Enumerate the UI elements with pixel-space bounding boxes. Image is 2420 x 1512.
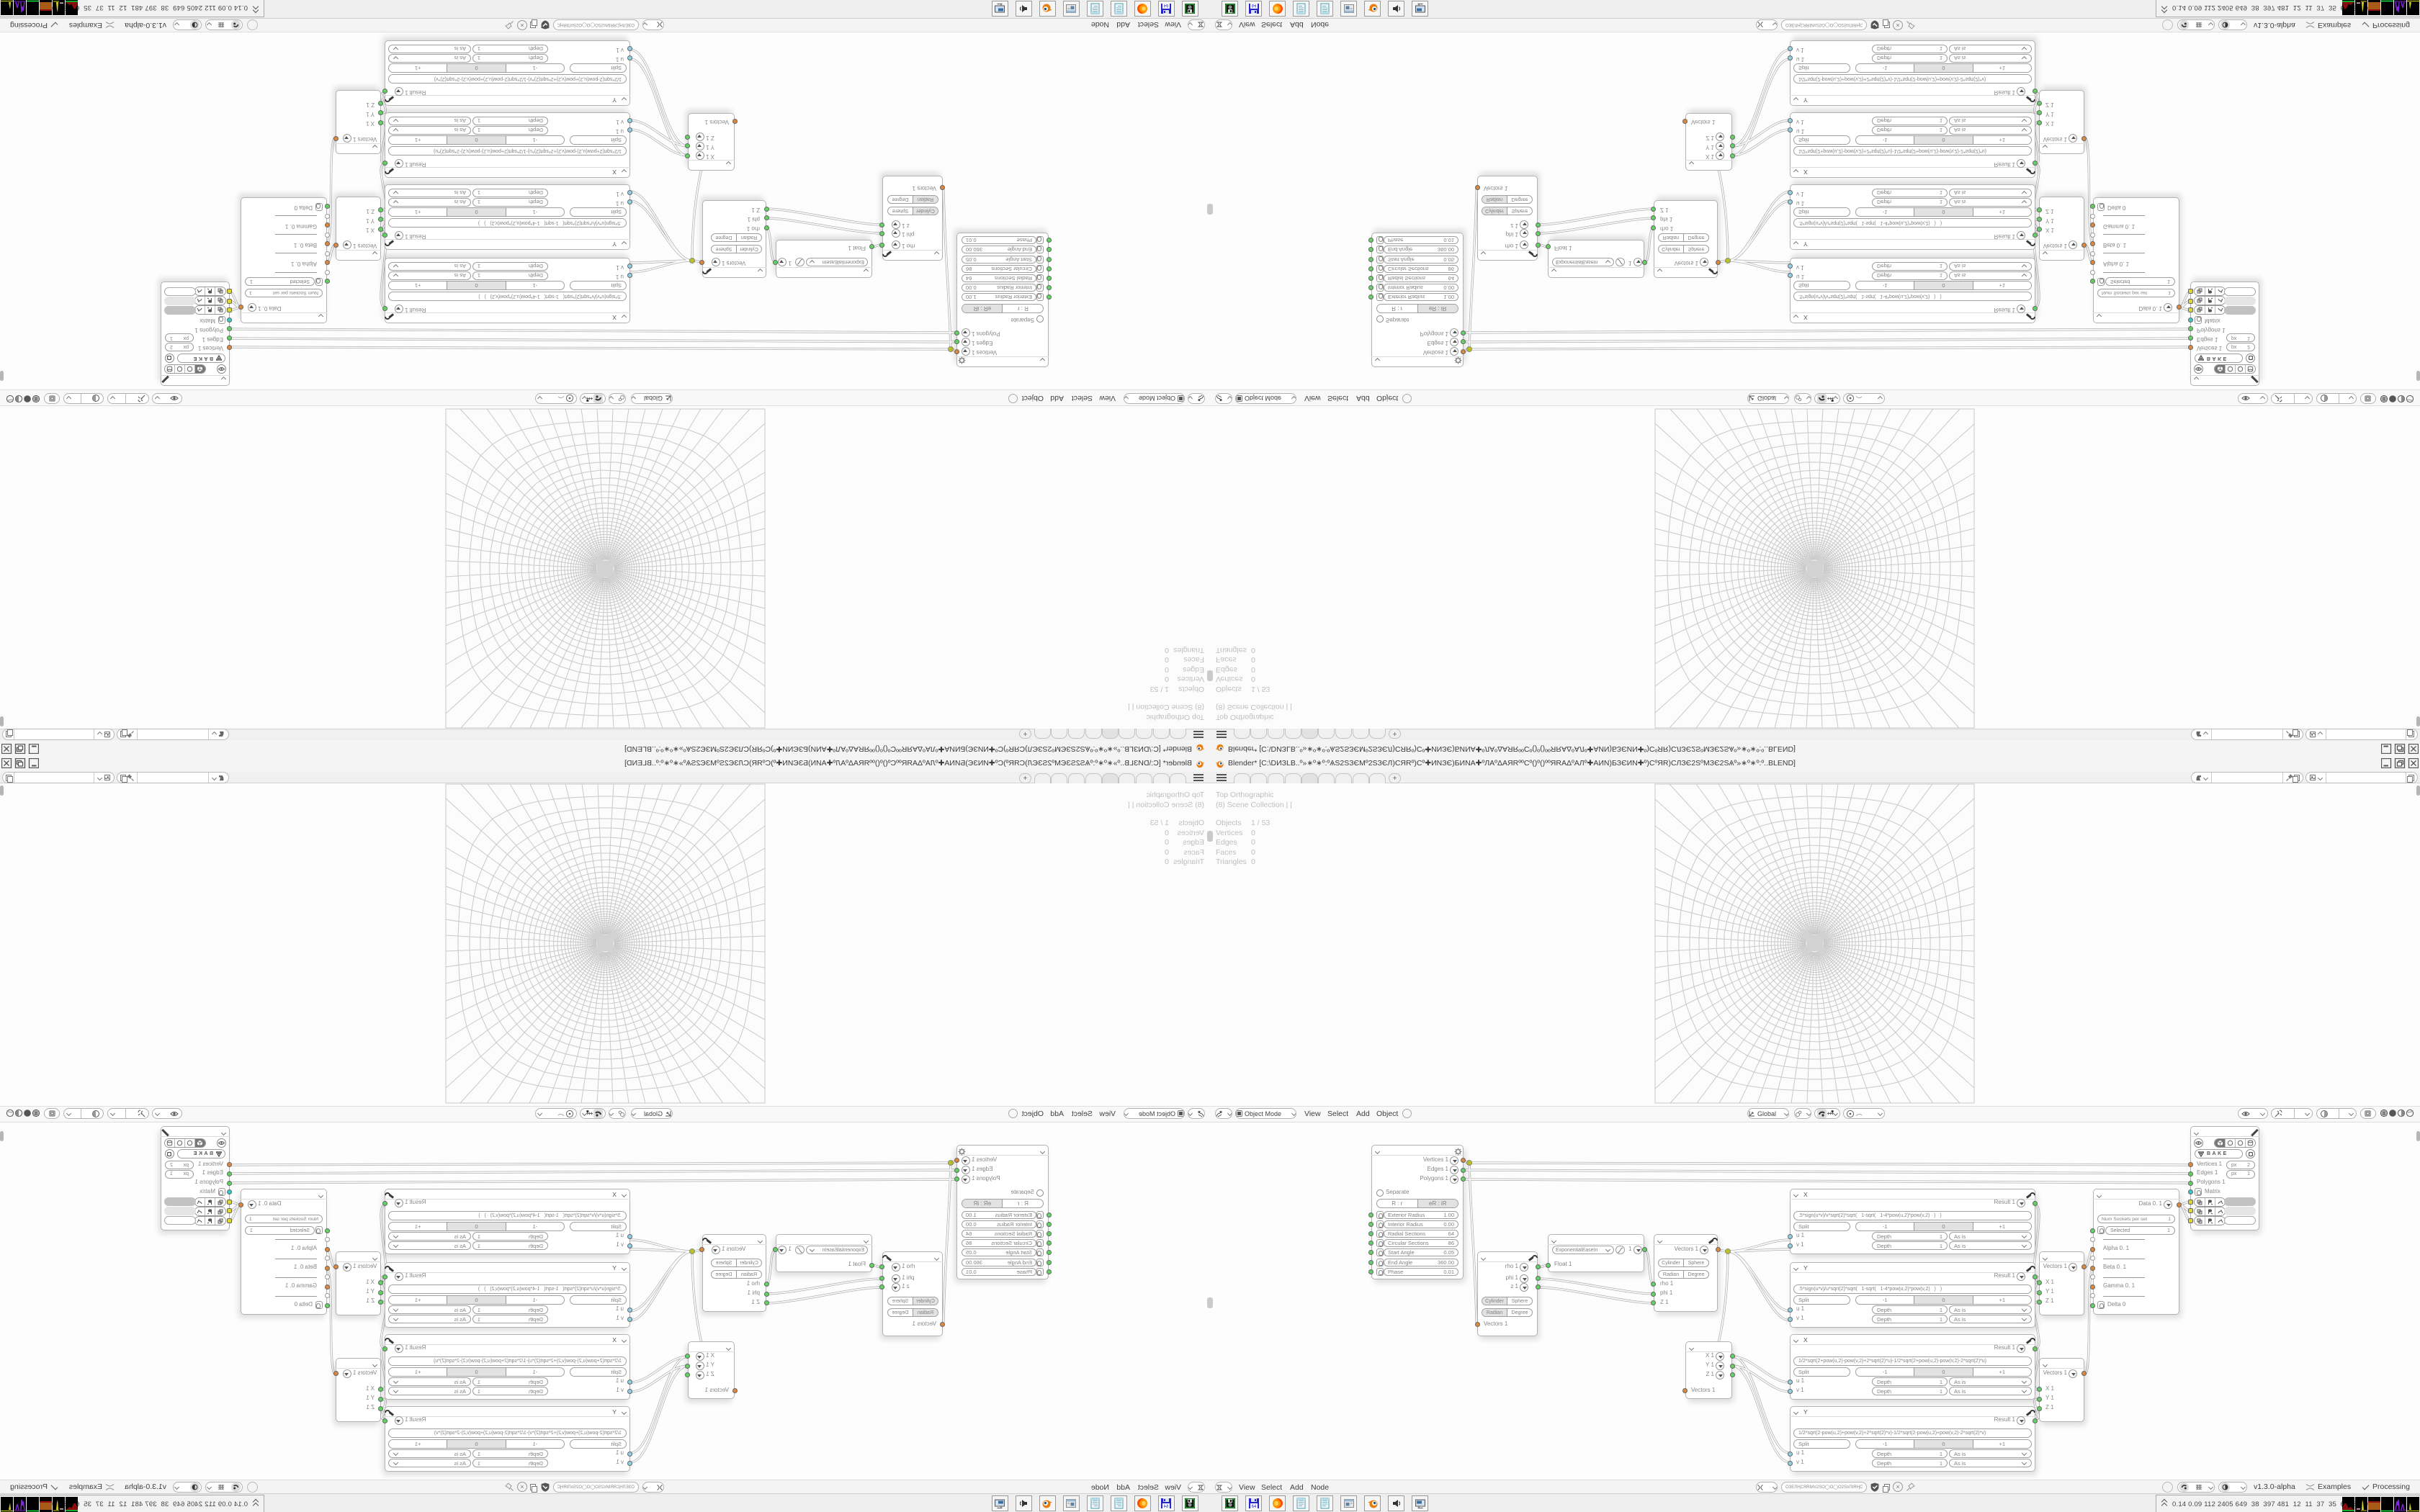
svg-text:64: 64	[1251, 3, 1256, 7]
svg-text:64: 64	[1164, 1505, 1169, 1509]
svg-text:64: 64	[1251, 1505, 1256, 1509]
svg-text:64: 64	[1164, 3, 1169, 7]
